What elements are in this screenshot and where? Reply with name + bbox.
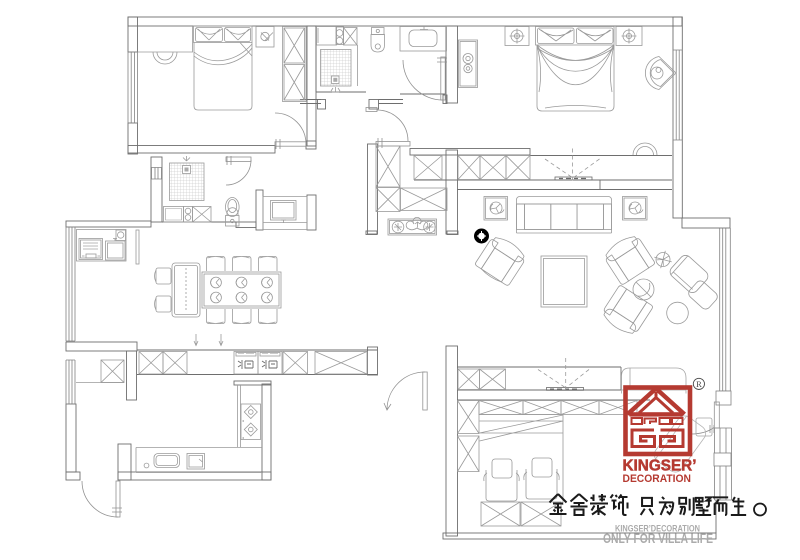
svg-text:ONLY FOR VILLA LIFE: ONLY FOR VILLA LIFE: [603, 530, 713, 546]
svg-text:DECORATION: DECORATION: [623, 473, 692, 485]
svg-text:KINGSER’: KINGSER’: [623, 458, 697, 475]
svg-text:R: R: [696, 379, 702, 389]
